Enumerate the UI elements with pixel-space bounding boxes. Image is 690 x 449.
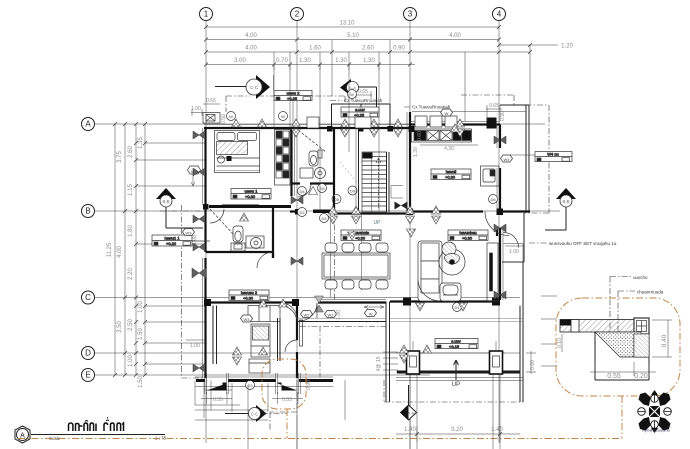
svg-text:W: W	[229, 114, 233, 119]
svg-text:2: 2	[295, 10, 300, 19]
svg-text:3.00: 3.00	[234, 58, 246, 64]
svg-text:0.55: 0.55	[607, 373, 621, 380]
svg-text:2.50: 2.50	[128, 319, 134, 331]
svg-text:13.10: 13.10	[339, 21, 355, 27]
svg-text:wunsvuuhu OFF SET vnuijahu 1u.: wunsvuuhu OFF SET vnuijahu 1u.	[549, 241, 617, 246]
svg-text:1.30: 1.30	[299, 58, 311, 64]
svg-text:0.40: 0.40	[661, 334, 668, 347]
svg-text:hawu1 1: hawu1 1	[164, 236, 180, 241]
svg-text:1.00: 1.00	[191, 106, 201, 112]
svg-text:1.15: 1.15	[128, 184, 134, 196]
svg-text:uawu 1: uawu 1	[245, 189, 259, 194]
svg-text:E: E	[85, 371, 90, 380]
svg-text:0.60: 0.60	[417, 131, 423, 141]
svg-text:D4: D4	[321, 216, 327, 221]
svg-text:havusu 2: havusu 2	[241, 290, 258, 295]
svg-text:a.uuv: a.uuv	[355, 107, 365, 112]
svg-text:5.10: 5.10	[347, 33, 359, 39]
svg-text:D9: D9	[350, 189, 356, 194]
svg-text:D6: D6	[490, 197, 496, 202]
svg-text:2.20: 2.20	[128, 268, 134, 280]
svg-text:0.90: 0.90	[530, 360, 536, 370]
svg-text:W: W	[369, 312, 373, 317]
svg-text:chuanrnuuda: chuanrnuuda	[637, 290, 664, 295]
svg-text:4: 4	[497, 10, 502, 19]
svg-text:W3: W3	[244, 317, 251, 322]
svg-text:4.00: 4.00	[245, 46, 257, 52]
svg-text:1: 1	[204, 10, 209, 19]
svg-text:0.55: 0.55	[213, 397, 223, 403]
svg-text:uawu 2: uawu 2	[287, 91, 301, 96]
svg-text:D1: D1	[454, 305, 460, 310]
svg-text:havnii: havnii	[446, 169, 457, 174]
svg-text:s.uuv: s.uuv	[451, 339, 461, 344]
svg-text:0.90: 0.90	[500, 111, 506, 121]
svg-text:B-B: B-B	[563, 199, 570, 204]
svg-text:1.50: 1.50	[138, 376, 144, 388]
svg-text:4.00: 4.00	[117, 246, 123, 258]
svg-text:1.80: 1.80	[128, 225, 134, 237]
svg-text:W2: W2	[304, 313, 311, 318]
svg-text:D2: D2	[299, 210, 305, 215]
svg-text:3: 3	[408, 10, 413, 19]
svg-text:W: W	[281, 114, 285, 119]
svg-text:W3: W3	[186, 231, 193, 236]
svg-text:C-C: C-C	[250, 85, 259, 90]
svg-text:D5: D5	[319, 186, 325, 191]
svg-text:0.10: 0.10	[557, 338, 563, 348]
svg-text:C: C	[85, 293, 91, 302]
svg-text:+0.30: +0.30	[355, 235, 366, 240]
svg-text:0.65: 0.65	[489, 103, 499, 109]
svg-text:2.60: 2.60	[128, 146, 134, 158]
svg-text:1.35: 1.35	[138, 137, 144, 149]
svg-text:1.00: 1.00	[509, 249, 519, 255]
svg-text:uuvchu: uuvchu	[633, 275, 648, 280]
svg-text:+0.30: +0.30	[243, 295, 254, 300]
svg-text:1.60: 1.60	[309, 46, 321, 52]
svg-text:1.30: 1.30	[335, 58, 347, 64]
svg-text:4.00: 4.00	[245, 33, 257, 39]
svg-text:0.65: 0.65	[358, 89, 368, 95]
svg-text:D4: D4	[299, 189, 305, 194]
svg-text:3.20: 3.20	[451, 427, 463, 433]
svg-text:havuvbau: havuvbau	[459, 230, 476, 235]
svg-text:W: W	[445, 111, 449, 116]
svg-text:0.55: 0.55	[282, 397, 292, 403]
svg-text:+0.15: +0.15	[449, 344, 460, 349]
svg-text:1.30: 1.30	[413, 147, 419, 157]
svg-text:1.30: 1.30	[363, 58, 375, 64]
svg-text:UP: UP	[374, 220, 382, 226]
svg-text:+0.30: +0.30	[445, 174, 456, 179]
svg-text:0.20: 0.20	[634, 373, 648, 380]
svg-text:1.00: 1.00	[128, 355, 134, 367]
svg-text:W2: W2	[328, 313, 335, 318]
svg-text:0.50: 0.50	[221, 114, 227, 124]
svg-text:+0.25: +0.25	[354, 112, 365, 117]
svg-text:+0.30: +0.30	[462, 235, 473, 240]
svg-text:3.50: 3.50	[117, 321, 123, 333]
svg-text:11.25: 11.25	[107, 242, 113, 257]
svg-text:+0.25: +0.25	[287, 96, 298, 101]
svg-text:1.00: 1.00	[190, 343, 200, 349]
svg-text:A: A	[85, 120, 91, 129]
svg-text:A-A: A-A	[408, 411, 415, 416]
svg-text:2.60: 2.60	[362, 46, 374, 52]
svg-text:1.20: 1.20	[561, 44, 573, 50]
svg-text:4@.15: 4@.15	[376, 356, 382, 371]
svg-text:W4 nu: W4 nu	[547, 152, 559, 157]
svg-text:+0.20: +0.20	[166, 241, 177, 246]
svg-text:W4: W4	[504, 157, 511, 162]
svg-text:0.90: 0.90	[306, 380, 312, 390]
svg-text:1.00: 1.00	[138, 301, 144, 313]
svg-text:1.00: 1.00	[192, 235, 198, 245]
svg-text:B-B: B-B	[163, 199, 170, 204]
svg-text:4.00: 4.00	[449, 33, 461, 39]
svg-text:0.90: 0.90	[393, 46, 405, 52]
svg-text:B: B	[85, 207, 90, 216]
svg-text:+0.30: +0.30	[245, 194, 256, 199]
svg-text:4.30: 4.30	[444, 146, 454, 152]
svg-text:UP: UP	[452, 382, 460, 388]
svg-text:3.75: 3.75	[117, 151, 123, 163]
svg-text:1.40: 1.40	[404, 427, 416, 433]
svg-text:1.00: 1.00	[336, 310, 342, 320]
svg-text:W: W	[350, 92, 354, 97]
svg-text:D3: D3	[247, 383, 253, 388]
svg-text:0.70: 0.70	[276, 58, 288, 64]
svg-text:D: D	[85, 349, 91, 358]
svg-text:ivjmahasuquihu: ivjmahasuquihu	[642, 428, 670, 433]
svg-text:0.65: 0.65	[206, 98, 216, 104]
svg-text:1.50: 1.50	[138, 328, 144, 340]
svg-text:C-C: C-C	[251, 412, 258, 417]
